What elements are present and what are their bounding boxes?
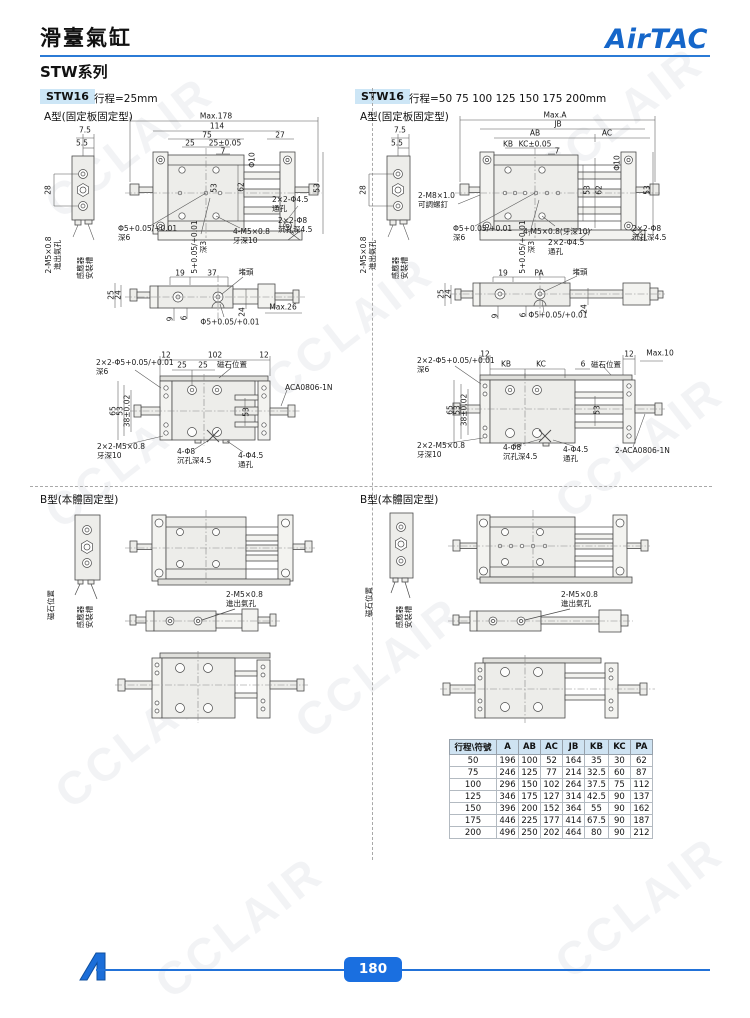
table-cell: 200 (450, 827, 497, 839)
note-label: 4-M5×0.8(牙深10) (523, 228, 590, 237)
figure-right-type-b: 磁石位置 感應器 安裝槽 2-M5×0.8 進出氣孔 (355, 505, 710, 755)
note-label: 2×2-Φ4.5 通孔 (548, 239, 584, 257)
note-label: 2×2-Φ4.5 通孔 (272, 196, 308, 214)
left-type-b-drawing (30, 505, 360, 755)
table-row: 10029615010226437.575112 (450, 779, 653, 791)
table-cell: 60 (608, 767, 630, 779)
stroke-label-right: 行程=50 75 100 125 150 175 200mm (409, 91, 606, 106)
dim-label: 7.5 (394, 127, 406, 136)
table-header-cell: KC (608, 740, 630, 755)
table-cell: 90 (608, 803, 630, 815)
table-header-cell: AC (541, 740, 563, 755)
table-cell: 100 (450, 779, 497, 791)
watermark: CCLAIR (544, 825, 733, 989)
footer-rule (96, 969, 710, 971)
dim-label: 12 (624, 351, 634, 360)
dim-label: 37 (207, 270, 217, 279)
table-cell: 125 (519, 767, 541, 779)
dim-label: 24 (445, 289, 454, 299)
note-label: 2×2-Φ5+0.05/+0.01 深6 (96, 359, 174, 377)
dim-label: 27 (275, 132, 285, 141)
page-number-badge: 180 (344, 957, 402, 982)
part-number-label: 2-ACA0806-1N (615, 447, 670, 456)
airtac-logo: AirTAC (605, 24, 708, 55)
dim-label: 12 (259, 352, 269, 361)
table-cell: 396 (497, 803, 519, 815)
table-cell: 346 (497, 791, 519, 803)
table-cell: 464 (563, 827, 585, 839)
dim-label: 7 (221, 148, 226, 157)
note-label: Φ5+0.05/+0.01 (528, 312, 587, 321)
table-header-cell: KB (585, 740, 609, 755)
port-label: 2-M5×0.8 進出氣孔 (226, 591, 263, 609)
magnet-label: 磁石位置 (217, 361, 247, 370)
table-cell: 214 (563, 767, 585, 779)
table-cell: 196 (497, 755, 519, 767)
table-cell: 177 (541, 815, 563, 827)
table-row: 5019610052164353062 (450, 755, 653, 767)
table-cell: 225 (519, 815, 541, 827)
port-label: 2-M5×0.8 進出氣孔 (561, 591, 598, 609)
table-cell: 75 (608, 779, 630, 791)
table-cell: 137 (630, 791, 652, 803)
dim-label: 5.5 (76, 140, 88, 149)
dim-label: 25 (185, 140, 195, 149)
table-cell: 164 (563, 755, 585, 767)
table-row: 17544622517741467.590187 (450, 815, 653, 827)
dim-label: 19 (175, 270, 185, 279)
header-rule (40, 55, 710, 57)
table-cell: 102 (541, 779, 563, 791)
table-cell: 125 (450, 791, 497, 803)
dimension-table: 行程\符號AABACJBKBKCPA5019610052164353062752… (449, 739, 653, 839)
note-label: 2×2-Φ8 沉孔深4.5 (278, 217, 312, 235)
note-label: Φ5+0.05/+0.01 (200, 319, 259, 328)
magnet-label: 磁石位置 (48, 590, 57, 620)
plug-label: 堵頭 (573, 269, 588, 278)
dim-label: 25 (177, 362, 187, 371)
table-cell: 414 (563, 815, 585, 827)
table-cell: 496 (497, 827, 519, 839)
note-label: 4-Φ4.5 通孔 (238, 452, 263, 470)
figure-left-type-b: 磁石位置 感應器 安裝槽 2-M5×0.8 進出氣孔 (30, 505, 360, 755)
table-row: 1503962001523645590162 (450, 803, 653, 815)
table-cell: 364 (563, 803, 585, 815)
table-header-cell: PA (630, 740, 652, 755)
table-cell: 90 (608, 791, 630, 803)
note-label: 2×2-Φ5+0.05/+0.01 深6 (417, 357, 495, 375)
dim-label: 53 (211, 183, 220, 193)
note-label: 4-Φ8 沉孔深4.5 (503, 444, 537, 462)
table-row: 12534617512731442.590137 (450, 791, 653, 803)
figure-left-bottom: 12 102 12 25 25 磁石位置 2×2-Φ5+0.05/+0.01 深… (95, 348, 357, 480)
table-cell: 314 (563, 791, 585, 803)
dim-label: 9 (492, 314, 501, 319)
table-cell: 150 (519, 779, 541, 791)
table-cell: 37.5 (585, 779, 609, 791)
table-cell: 187 (630, 815, 652, 827)
dim-label: KC (536, 361, 546, 370)
port-label: 2-M5×0.8 進出氣孔 (360, 237, 378, 274)
figure-right-mid: 19 PA 堵頭 25 24 9 6 24 Φ5+0.05/+0.01 (430, 263, 710, 348)
dim-label: JB (554, 121, 561, 130)
table-cell: 52 (541, 755, 563, 767)
table-header-cell: 行程\符號 (450, 740, 497, 755)
right-mid-drawing (430, 263, 710, 348)
table-cell: 42.5 (585, 791, 609, 803)
table-cell: 50 (450, 755, 497, 767)
table-cell: 80 (585, 827, 609, 839)
table-header-cell: AB (519, 740, 541, 755)
table-cell: 152 (541, 803, 563, 815)
dim-label: 62 (238, 182, 247, 192)
table-cell: 200 (519, 803, 541, 815)
note-label: 4-Φ8 沉孔深4.5 (177, 448, 211, 466)
table-cell: 67.5 (585, 815, 609, 827)
dim-label: 24 (239, 307, 248, 317)
dim-label: KB (503, 141, 513, 150)
table-cell: 127 (541, 791, 563, 803)
table-cell: 32.5 (585, 767, 609, 779)
dim-label: 24 (115, 290, 124, 300)
table-header-cell: JB (563, 740, 585, 755)
dim-label: 38±0.02 (461, 394, 470, 427)
watermark: CCLAIR (144, 845, 333, 1009)
dim-label: 6 (520, 313, 529, 318)
dim-label: 25 (198, 362, 208, 371)
table-cell: 30 (608, 755, 630, 767)
dim-label: 9 (167, 317, 176, 322)
figure-left-mid: 19 37 堵頭 25 24 9 6 24 Max.26 Φ5+0.05/+0.… (100, 263, 355, 348)
table-cell: 112 (630, 779, 652, 791)
table-cell: 212 (630, 827, 652, 839)
dim-label: 53 (584, 185, 593, 195)
table-cell: 202 (541, 827, 563, 839)
dim-label: KB (501, 361, 511, 370)
note-label: 2×2-Φ8 沉孔深4.5 (632, 225, 666, 243)
dim-label: 7.5 (79, 127, 91, 136)
table-cell: 35 (585, 755, 609, 767)
dim-label: 53 (243, 407, 252, 417)
table-cell: 175 (450, 815, 497, 827)
plug-label: 堵頭 (239, 269, 254, 278)
model-badge-left: STW16 (40, 89, 95, 104)
magnet-label: 磁石位置 (591, 361, 621, 370)
sensor-slot-label: 感應器 安裝槽 (392, 257, 410, 280)
dim-label: 53 (594, 405, 603, 415)
dim-label: 7 (555, 148, 560, 157)
dim-label: Max.178 (200, 113, 232, 122)
table-row: 752461257721432.56087 (450, 767, 653, 779)
adjuster-label: 2-M8×1.0 可調螺釘 (418, 192, 455, 210)
datasheet-page: CCLAIR CCLAIR CCLAIR CCLAIR CCLAIR CCLAI… (0, 0, 750, 1018)
dim-label: Φ10 (249, 152, 258, 167)
part-number-label: ACA0806-1N (285, 384, 333, 393)
note-label: 2×2-M5×0.8 牙深10 (417, 442, 465, 460)
table-cell: 250 (519, 827, 541, 839)
table-cell: 296 (497, 779, 519, 791)
dim-label: AB (530, 130, 540, 139)
dim-label: 38±0.02 (124, 395, 133, 428)
table-cell: 100 (519, 755, 541, 767)
model-badge-right: STW16 (355, 89, 410, 104)
table-cell: 55 (585, 803, 609, 815)
note-label: Φ5+0.05/+0.01 深6 (118, 225, 177, 243)
dim-label: Max.10 (646, 350, 673, 359)
dim-label: 28 (45, 185, 54, 195)
table-cell: 175 (519, 791, 541, 803)
dim-label: 28 (360, 185, 369, 195)
dim-label: Max.26 (269, 304, 296, 313)
table-cell: 150 (450, 803, 497, 815)
port-label: 2-M5×0.8 進出氣孔 (45, 237, 63, 274)
dim-label: 6 (581, 361, 586, 370)
dim-label: Φ10 (614, 155, 623, 170)
dim-label: PA (534, 270, 543, 279)
note-label: 4-M5×0.8 牙深10 (233, 228, 270, 246)
dim-label: 19 (498, 270, 508, 279)
page-title: 滑臺氣缸 (40, 22, 132, 52)
table-cell: 264 (563, 779, 585, 791)
table-row: 2004962502024648090212 (450, 827, 653, 839)
table-cell: 75 (450, 767, 497, 779)
left-mid-drawing (100, 263, 355, 348)
dim-label: KC±0.05 (519, 141, 552, 150)
dim-label: 53 (644, 185, 653, 195)
table-header-cell: A (497, 740, 519, 755)
table-cell: 90 (608, 815, 630, 827)
note-label: 4-Φ4.5 通孔 (563, 446, 588, 464)
table-cell: 446 (497, 815, 519, 827)
dim-label: AC (602, 130, 612, 139)
sensor-slot-label: 感應器 安裝槽 (396, 606, 414, 629)
dim-label: 5.5 (391, 140, 403, 149)
note-label: Φ5+0.05/+0.01 深6 (453, 225, 512, 243)
airtac-footer-logo (76, 948, 122, 988)
table-cell: 87 (630, 767, 652, 779)
series-title: STW系列 (40, 61, 108, 82)
table-cell: 246 (497, 767, 519, 779)
table-cell: 77 (541, 767, 563, 779)
table-cell: 162 (630, 803, 652, 815)
stroke-label-left: 行程=25mm (94, 91, 158, 106)
magnet-label: 磁石位置 (366, 587, 375, 617)
sensor-slot-label: 感應器 安裝槽 (77, 257, 95, 280)
figure-right-bottom: 12 12 Max.10 KB KC 6 磁石位置 2×2-Φ5+0.05/+0… (415, 348, 710, 480)
dim-label: 6 (181, 316, 190, 321)
dim-label: 62 (596, 185, 605, 195)
table-cell: 90 (608, 827, 630, 839)
right-type-b-drawing (355, 505, 710, 755)
dim-label: 53 (314, 183, 323, 193)
table-cell: 62 (630, 755, 652, 767)
note-label: 2×2-M5×0.8 牙深10 (97, 443, 145, 461)
sensor-slot-label: 感應器 安裝槽 (77, 606, 95, 629)
section-divider (30, 486, 712, 487)
